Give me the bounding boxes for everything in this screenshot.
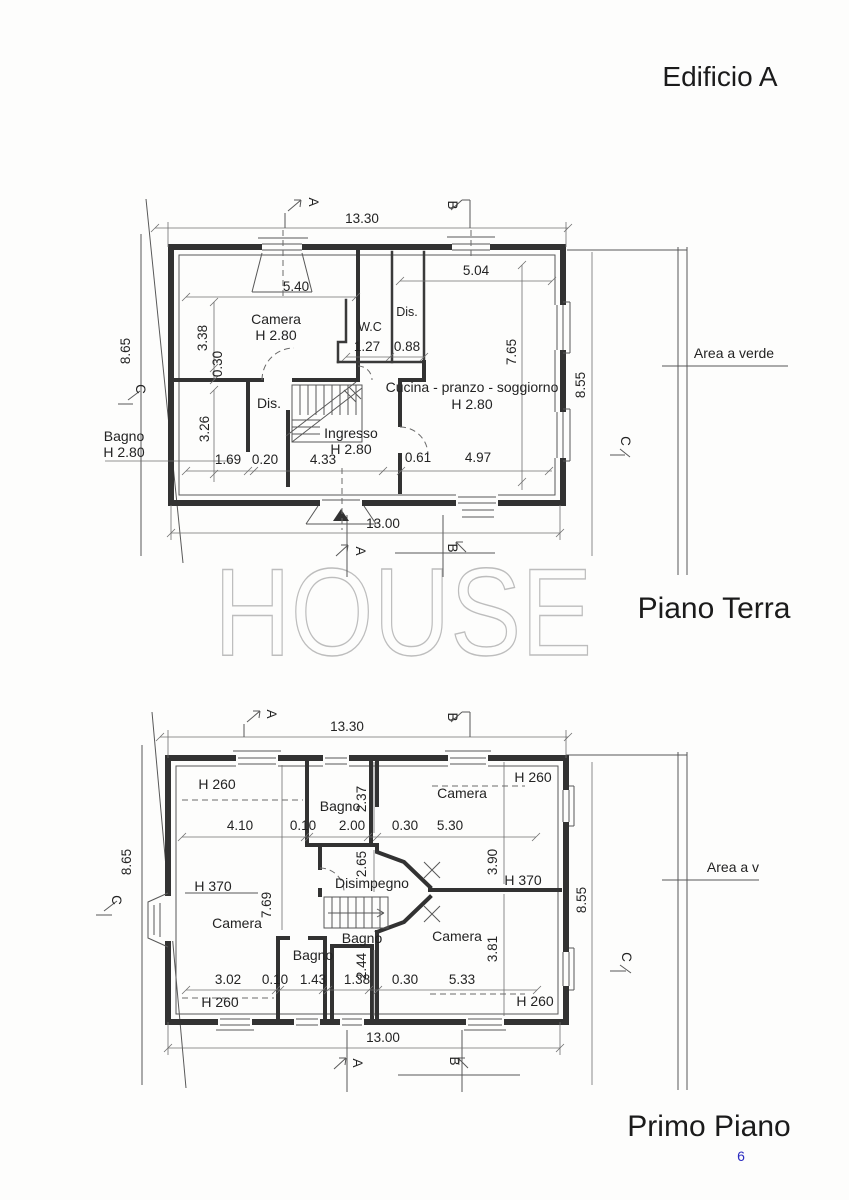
gf-room-ingresso-height: H 2.80 [330, 441, 371, 457]
gf-section-c-right: C [618, 436, 633, 446]
gf-dim-cucina-width: 5.04 [463, 263, 490, 278]
gf-room-camera-height: H 2.80 [255, 327, 296, 343]
gf-dim-cucina-depth: 7.65 [504, 339, 519, 365]
ff-dim-row-bottom-5: 5.33 [449, 972, 475, 987]
gf-section-c-left: C [133, 384, 148, 394]
gf-dim-total-bottom: 13.00 [366, 516, 400, 531]
gf-section-a-bottom: A [353, 546, 368, 555]
gf-dim-dis-width: 0.88 [394, 339, 420, 354]
gf-dim-right-total: 8.55 [573, 372, 588, 398]
floor-plan-canvas: Edificio A HOUSE [0, 0, 849, 1200]
ff-site-boundary [142, 712, 759, 1092]
ff-height-attic-tr: H 260 [514, 769, 552, 785]
gf-dim-camera-width: 5.40 [283, 279, 309, 294]
ff-room-camera-top-right: Camera [437, 785, 487, 801]
ff-dim-row-bottom-1: 0.10 [262, 972, 288, 987]
gf-room-bagno-height: H 2.80 [103, 444, 144, 460]
ff-area-note: Area a v [707, 859, 759, 875]
gf-dim-wc-width: 1.27 [354, 339, 380, 354]
ff-dim-camera-br-depth: 3.81 [485, 936, 500, 962]
ff-dim-total-bottom: 13.00 [366, 1030, 400, 1045]
gf-area-note: Area a verde [694, 345, 774, 361]
gf-room-cucina-height: H 2.80 [451, 396, 492, 412]
gf-dim-camera-depth: 3.38 [195, 325, 210, 351]
gf-room-cucina: Cucina - pranzo - soggiorno [386, 379, 559, 395]
page-number: 6 [737, 1148, 745, 1164]
ff-section-c-left: C [109, 895, 124, 905]
ff-dim-row-top-4: 5.30 [437, 818, 463, 833]
ff-height-ridge-left: H 370 [194, 878, 232, 894]
gf-room-ingresso: Ingresso [324, 425, 378, 441]
ff-caption: Primo Piano [627, 1110, 790, 1143]
ff-room-bagno-middle: Bagno [342, 930, 383, 946]
house-watermark: HOUSE [214, 544, 592, 682]
ff-room-disimpegno: Disimpegno [335, 875, 409, 891]
ff-height-attic-tl: H 260 [198, 776, 236, 792]
ff-dim-disimpegno-depth: 2.65 [354, 851, 369, 877]
ff-dim-row-top-2: 2.00 [339, 818, 365, 833]
ff-dim-row-bottom-4: 0.30 [392, 972, 418, 987]
ff-room-camera-bottom-right: Camera [432, 928, 482, 944]
scanned-floor-plan-page: Edificio A HOUSE [0, 0, 849, 1200]
ff-height-ridge-right: H 370 [504, 872, 542, 888]
first-floor-plan: A B A B C C 13.30 H 260 H 260 H 260 H 26… [96, 709, 791, 1143]
ff-dim-right-total: 8.55 [574, 887, 589, 913]
ff-dim-row-bottom-3: 1.38 [344, 972, 370, 987]
gf-dim-bagno-width: 1.69 [215, 452, 241, 467]
ff-dim-row-bottom-0: 3.02 [215, 972, 241, 987]
ff-dim-row-top-0: 4.10 [227, 818, 253, 833]
gf-room-bagno: Bagno [104, 428, 145, 444]
gf-room-dis-mid: Dis. [257, 395, 281, 411]
gf-dim-cucina-width2: 4.97 [465, 450, 491, 465]
gf-room-wc: W.C [358, 320, 382, 334]
ff-dim-left-total: 8.65 [119, 849, 134, 875]
ff-height-attic-br: H 260 [516, 993, 554, 1009]
gf-section-a-top: A [306, 197, 321, 206]
ff-dim-total-top: 13.30 [330, 719, 364, 734]
gf-dim-wall: 0.30 [210, 351, 225, 377]
ff-stairs [324, 897, 388, 928]
building-title: Edificio A [662, 61, 777, 92]
ff-section-a-top: A [264, 709, 279, 718]
ff-section-c-right: C [619, 952, 634, 962]
gf-dim-total-top: 13.30 [345, 211, 379, 226]
gf-labels: 13.30 5.40 5.04 3.38 0.30 3.26 1.27 0.88… [103, 211, 774, 531]
gf-dim-ingresso-width: 4.33 [310, 452, 336, 467]
ff-dim-row-top-3: 0.30 [392, 818, 418, 833]
ff-labels: 13.30 H 260 H 260 H 260 H 260 Bagno 2.37… [119, 719, 759, 1045]
ff-room-camera-left: Camera [212, 915, 262, 931]
ff-dim-row-bottom-2: 1.43 [300, 972, 326, 987]
ff-dim-camera-tr-depth: 3.90 [485, 849, 500, 875]
ff-section-a-bottom: A [350, 1058, 365, 1067]
ff-dim-row-top-1: 0.10 [290, 818, 316, 833]
gf-dim-left-total: 8.65 [118, 338, 133, 364]
ff-section-b-bottom: B [447, 1056, 462, 1065]
gf-room-dis-top: Dis. [396, 305, 418, 319]
gf-room-camera: Camera [251, 311, 301, 327]
gf-section-b-bottom: B [445, 543, 460, 552]
ff-dim-bagno-top-depth: 2.37 [354, 786, 369, 812]
ff-room-bagno-bottom-left: Bagno [293, 947, 334, 963]
gf-dim-wall2: 0.20 [252, 452, 278, 467]
gf-section-b-top: B [445, 200, 460, 209]
ff-height-attic-bl: H 260 [201, 994, 239, 1010]
gf-dim-bagno-depth: 3.26 [197, 416, 212, 442]
gf-caption: Piano Terra [638, 592, 791, 625]
gf-dim-wall3: 0.61 [405, 450, 431, 465]
ff-section-b-top: B [445, 712, 460, 721]
